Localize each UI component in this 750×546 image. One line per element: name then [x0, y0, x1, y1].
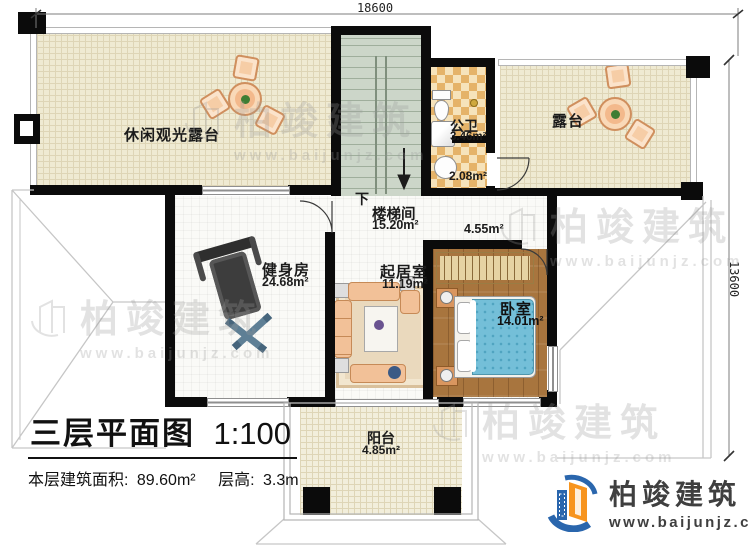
floor-plan-canvas: 休闲观光露台 露台 公卫 3.46m² 2.08m² 下 楼梯间 15.20m²… — [0, 0, 750, 546]
floor-area-label: 本层建筑面积: — [28, 472, 128, 489]
title-block: 三层平面图 1:100 本层建筑面积: 89.60m² 层高: 3.3m — [28, 408, 299, 490]
dimension-top-value: 18600 — [352, 1, 398, 15]
roof-outline-right — [557, 196, 711, 458]
logo-website: www.baijunjz.com — [609, 514, 750, 531]
label-stair-down: 下 — [355, 189, 369, 209]
door-bedroom — [521, 249, 547, 275]
roof-outline-balcony — [256, 519, 506, 544]
label-bath-lobby-area: 2.08m² — [449, 169, 487, 183]
label-living-area: 11.19m² — [382, 277, 428, 291]
dimension-line-right — [724, 55, 734, 461]
door-terrace — [497, 158, 529, 190]
balcony-frame — [284, 403, 478, 520]
label-stairwell-area: 15.20m² — [372, 218, 419, 232]
label-gym-area: 24.68m² — [262, 275, 309, 289]
label-bedroom-area: 14.01m² — [497, 314, 544, 328]
plan-scale: 1:100 — [213, 416, 291, 451]
floor-area-value: 89.60m² — [137, 472, 196, 489]
logo-company-name: 柏竣建筑 — [609, 473, 750, 513]
label-public-bath-area: 3.46m² — [450, 131, 486, 143]
label-leisure-terrace: 休闲观光露台 — [124, 124, 220, 145]
company-logo: 柏竣建筑 www.baijunjz.com — [545, 472, 750, 532]
dimension-line-top — [31, 8, 743, 56]
floor-height-value: 3.3m — [263, 472, 299, 489]
label-terrace: 露台 — [552, 110, 584, 131]
label-hall-area: 4.55m² — [464, 222, 504, 236]
door-gym — [300, 201, 332, 233]
stair-down-arrow — [398, 148, 410, 189]
page-title: 三层平面图 — [30, 416, 195, 451]
logo-building-icon — [545, 472, 601, 532]
label-balcony-area: 4.85m² — [350, 443, 412, 457]
floor-height-label: 层高: — [218, 472, 254, 489]
dimension-right-value: 13600 — [727, 261, 741, 297]
